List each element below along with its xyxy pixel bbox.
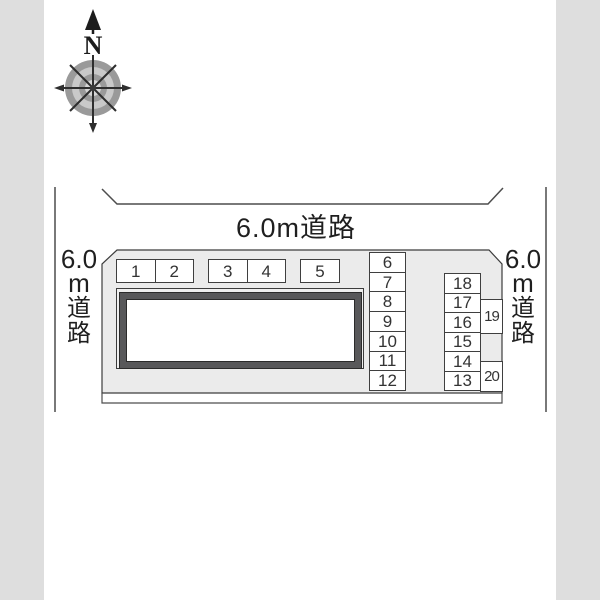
stall-column-18-13: 18 17 16 15 14 13 (444, 273, 481, 391)
stall-cell: 5 (301, 260, 339, 282)
stall-cell: 14 (445, 351, 480, 371)
bottom-boundary-line (102, 393, 502, 403)
stall-cell: 7 (370, 272, 405, 292)
stall-cell: 18 (445, 274, 480, 293)
stall-cell: 1 (117, 260, 155, 282)
road-label-text: m (512, 271, 534, 296)
stall-cell: 13 (445, 371, 480, 391)
stall-cell: 2 (155, 260, 194, 282)
site-plan: N 1 2 3 4 5 6 7 8 9 10 11 12 18 17 16 15… (0, 0, 600, 600)
stall-cell: 20 (481, 362, 502, 391)
compass-icon: N (54, 9, 132, 133)
building-footprint (120, 293, 361, 368)
stall-cell: 15 (445, 332, 480, 352)
stall-cell: 6 (370, 253, 405, 272)
stall-cell: 10 (370, 331, 405, 351)
stall-cell: 11 (370, 351, 405, 371)
stall-5: 5 (300, 259, 340, 283)
north-label: N (84, 31, 103, 60)
stall-cell: 4 (247, 260, 286, 282)
stall-pair-1-2: 1 2 (116, 259, 194, 283)
stall-20: 20 (480, 361, 503, 392)
stall-cell: 9 (370, 311, 405, 331)
right-road-label: 6.0 m 道 路 (500, 247, 546, 346)
stall-cell: 8 (370, 291, 405, 311)
road-label-text: m (68, 271, 90, 296)
top-road-label: 6.0m道路 (146, 213, 446, 243)
road-label-text: 道 (67, 296, 91, 321)
stall-cell: 12 (370, 370, 405, 390)
stall-cell: 17 (445, 293, 480, 313)
stall-column-6-12: 6 7 8 9 10 11 12 (369, 252, 406, 391)
stall-pair-3-4: 3 4 (208, 259, 286, 283)
top-road-line (102, 188, 503, 204)
road-label-text: 道 (511, 296, 535, 321)
stall-cell: 16 (445, 312, 480, 332)
road-label-text: 路 (67, 321, 91, 346)
road-label-text: 路 (511, 321, 535, 346)
stall-cell: 19 (481, 300, 502, 333)
left-road-label: 6.0 m 道 路 (56, 247, 102, 346)
stall-cell: 3 (209, 260, 247, 282)
